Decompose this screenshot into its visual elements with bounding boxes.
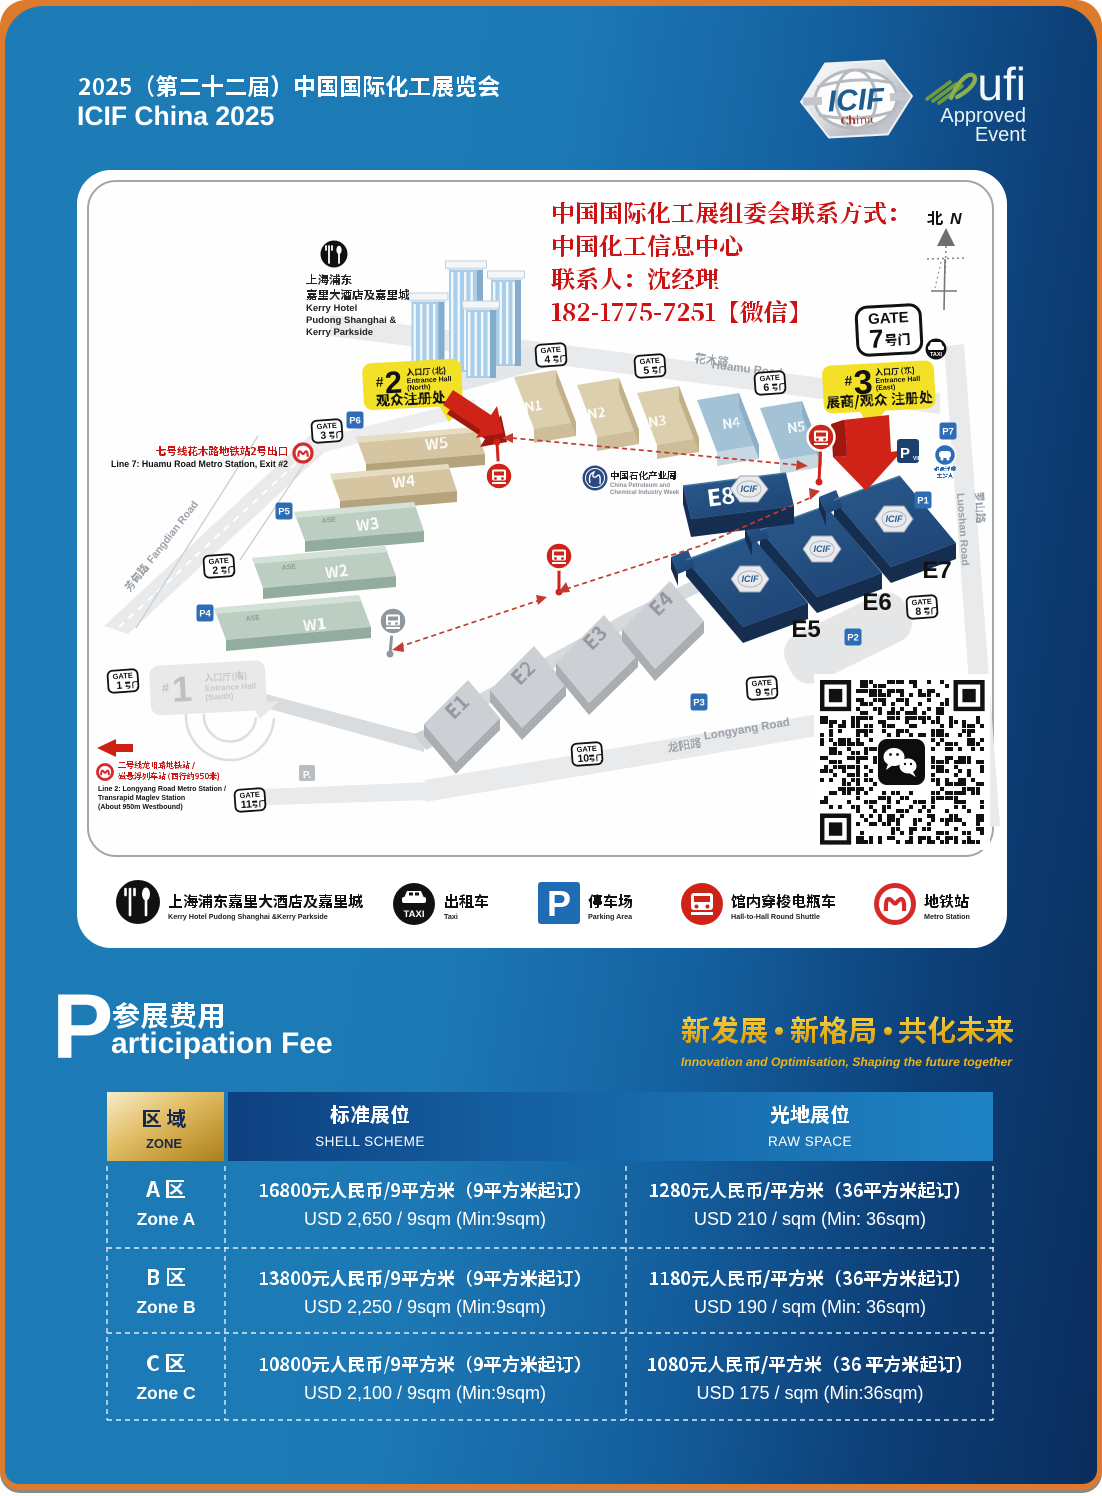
svg-text:N: N	[950, 211, 962, 228]
svg-text:P6: P6	[349, 415, 361, 426]
svg-text:7: 7	[868, 323, 884, 354]
svg-text:(East): (East)	[876, 384, 896, 392]
svg-text:Line 2: Longyang Road Metro St: Line 2: Longyang Road Metro Station /	[98, 786, 226, 793]
svg-text:USD 190 / sqm (Min: 36sqm): USD 190 / sqm (Min: 36sqm)	[694, 1297, 926, 1317]
svg-text:P: P	[52, 976, 113, 1078]
svg-text:Hall-to-Hall Round Shuttle: Hall-to-Hall Round Shuttle	[731, 912, 820, 921]
svg-text:ICIF: ICIF	[827, 83, 886, 119]
svg-text:USD 2,100 / 9sqm (Min:9sqm): USD 2,100 / 9sqm (Min:9sqm)	[304, 1383, 546, 1403]
svg-text:Taxi: Taxi	[444, 912, 458, 921]
svg-text:(About 950m Westbound): (About 950m Westbound)	[98, 804, 183, 811]
svg-text:Pudong Shanghai &: Pudong Shanghai &	[306, 315, 396, 326]
svg-text:Zone A: Zone A	[137, 1209, 196, 1229]
svg-text:Zone B: Zone B	[136, 1297, 195, 1317]
svg-text:E5: E5	[791, 616, 820, 643]
svg-text:P1: P1	[917, 495, 929, 506]
svg-text:#: #	[844, 372, 853, 388]
svg-text:P: P	[547, 883, 571, 924]
svg-text:ZONE: ZONE	[146, 1136, 182, 1151]
svg-text:Metro Station: Metro Station	[924, 912, 970, 921]
svg-text:USD 210 / sqm (Min: 36sqm): USD 210 / sqm (Min: 36sqm)	[694, 1209, 926, 1229]
svg-text:P3: P3	[693, 697, 705, 708]
svg-text:P5: P5	[278, 506, 290, 517]
svg-text:2: 2	[212, 565, 219, 577]
svg-text:Transrapid Maglev Station: Transrapid Maglev Station	[98, 795, 185, 802]
svg-text:ICIF: ICIF	[814, 544, 832, 554]
svg-text:(North): (North)	[407, 384, 431, 392]
svg-text:#: #	[375, 373, 384, 389]
svg-text:Kerry Hotel Pudong Shanghai &K: Kerry Hotel Pudong Shanghai &Kerry Parks…	[168, 912, 328, 921]
svg-text:USD 2,250 / 9sqm (Min:9sqm): USD 2,250 / 9sqm (Min:9sqm)	[304, 1297, 546, 1317]
svg-text:6: 6	[763, 382, 770, 394]
svg-text:Parking Area: Parking Area	[588, 912, 633, 921]
svg-text:USD 2,650 / 9sqm (Min:9sqm): USD 2,650 / 9sqm (Min:9sqm)	[304, 1209, 546, 1229]
svg-text:Kerry Hotel: Kerry Hotel	[306, 303, 357, 314]
svg-text:RAW SPACE: RAW SPACE	[768, 1134, 852, 1149]
svg-text:Line 7: Huamu Road Metro Stati: Line 7: Huamu Road Metro Station, Exit #…	[111, 459, 288, 469]
svg-text:P7: P7	[942, 426, 954, 437]
svg-text:P: P	[900, 445, 910, 462]
svg-text:11: 11	[240, 798, 252, 811]
svg-text:VIP: VIP	[913, 456, 922, 462]
svg-text:9: 9	[755, 687, 762, 699]
svg-text:4: 4	[544, 354, 551, 366]
svg-text:China Petroleum and: China Petroleum and	[610, 483, 670, 489]
svg-text:ICIF China 2025: ICIF China 2025	[77, 101, 274, 131]
svg-text:Event: Event	[975, 124, 1027, 146]
svg-text:ICIF: ICIF	[742, 574, 760, 584]
svg-text:Kerry Parkside: Kerry Parkside	[306, 327, 373, 338]
svg-text:5: 5	[643, 365, 650, 377]
svg-text:articipation Fee: articipation Fee	[111, 1027, 333, 1060]
svg-text:P2: P2	[847, 632, 859, 643]
svg-text:10: 10	[577, 752, 590, 765]
svg-text:USD 175 / sqm (Min:36sqm): USD 175 / sqm (Min:36sqm)	[696, 1383, 923, 1403]
svg-text:TAXI: TAXI	[404, 909, 425, 920]
svg-text:Innovation and Optimisation, S: Innovation and Optimisation, Shaping the…	[681, 1055, 1013, 1069]
svg-text:(South): (South)	[205, 692, 234, 702]
svg-text:Zone C: Zone C	[136, 1383, 196, 1403]
svg-text:ICIF: ICIF	[741, 484, 759, 494]
svg-text:8: 8	[915, 606, 922, 618]
svg-text:1: 1	[171, 668, 193, 710]
svg-text:1: 1	[116, 680, 123, 692]
svg-text:E6: E6	[862, 589, 891, 616]
svg-text:ICIF: ICIF	[886, 514, 904, 524]
svg-text:P.: P.	[303, 770, 311, 781]
svg-text:E7: E7	[922, 557, 951, 584]
svg-text:Chemical Industry Week: Chemical Industry Week	[610, 490, 680, 496]
svg-text:ufi: ufi	[977, 58, 1026, 110]
svg-text:P4: P4	[199, 608, 211, 619]
svg-text:TAXI: TAXI	[930, 352, 943, 358]
svg-text:SHELL SCHEME: SHELL SCHEME	[315, 1134, 425, 1149]
svg-text:3: 3	[320, 430, 327, 442]
